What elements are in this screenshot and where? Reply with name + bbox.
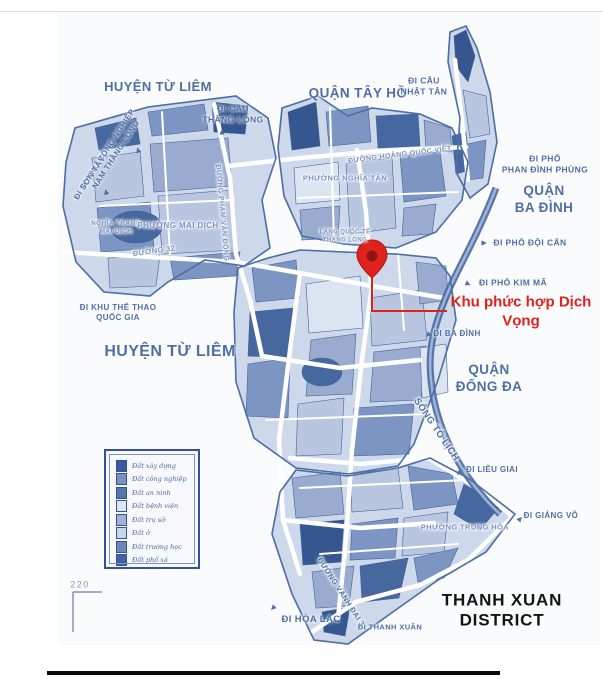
legend-item: Đất trụ sở (116, 513, 198, 526)
legend-item: Đất ở (116, 527, 198, 540)
map-artwork (0, 0, 603, 679)
legend: Đất xây dựngĐất công nghiệpĐất an ninhĐấ… (104, 449, 200, 569)
legend-label: Đất bệnh viện (132, 502, 178, 510)
legend-item: Đất công nghiệp (116, 473, 198, 486)
legend-label: Đất ở (132, 529, 150, 537)
legend-swatch (116, 514, 127, 526)
legend-label: Đất xây dựng (132, 462, 176, 470)
legend-label: Đất công nghiệp (132, 475, 187, 483)
legend-swatch (116, 541, 127, 553)
legend-item: Đất an ninh (116, 486, 198, 499)
legend-items: Đất xây dựngĐất công nghiệpĐất an ninhĐấ… (116, 459, 198, 567)
legend-label: Đất an ninh (132, 489, 171, 497)
legend-swatch (116, 460, 127, 472)
bottom-rule (47, 671, 500, 675)
legend-label: Đất trường học (132, 543, 182, 551)
legend-swatch (116, 473, 127, 485)
legend-item: Đất bệnh viện (116, 500, 198, 513)
legend-item: Đất phố xá (116, 554, 198, 567)
top-rule (0, 11, 603, 12)
legend-label: Đất phố xá (132, 556, 168, 564)
legend-swatch (116, 487, 127, 499)
legend-item: Đất xây dựng (116, 459, 198, 472)
legend-item: Đất trường học (116, 540, 198, 553)
legend-swatch (116, 500, 127, 512)
legend-swatch (116, 527, 127, 539)
legend-label: Đất trụ sở (132, 516, 165, 524)
legend-swatch (116, 554, 127, 566)
map-figure: Đất xây dựngĐất công nghiệpĐất an ninhĐấ… (0, 0, 603, 679)
